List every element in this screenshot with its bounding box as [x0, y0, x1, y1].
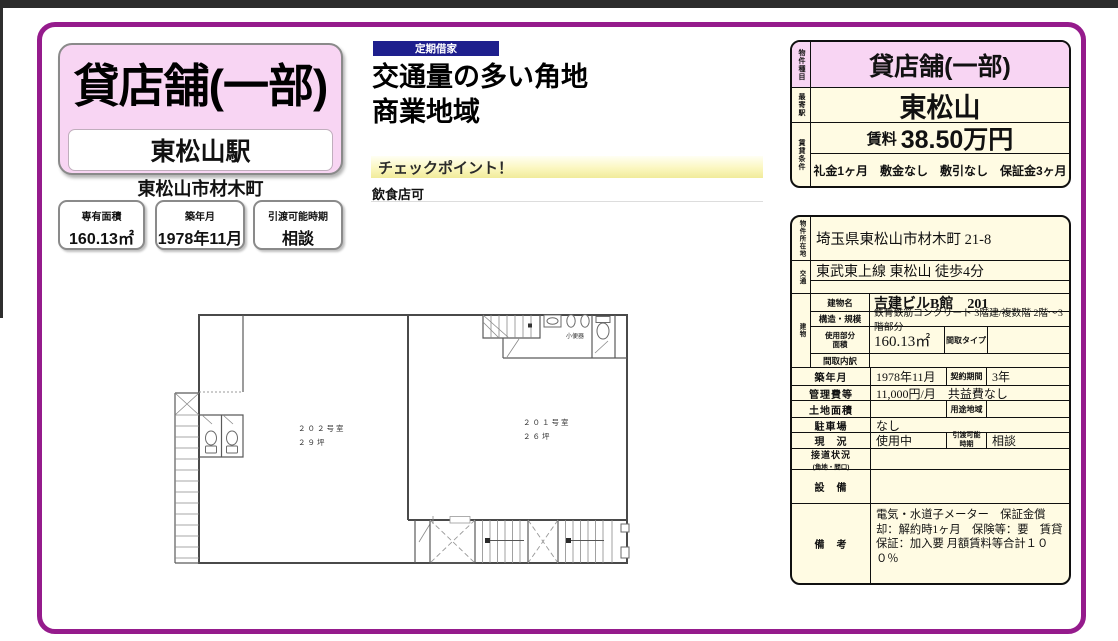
parking-value: なし — [871, 418, 1069, 432]
property-flyer-page: 貸店舗(一部) 東松山駅 東松山市材木町 専有面積 160.13㎡ 築年月 19… — [0, 0, 1118, 641]
access-line1: 東武東上線 東松山 徒歩4分 — [811, 261, 1069, 281]
fact-label: 築年月 — [157, 208, 243, 223]
remarks-value: 電気・水道子メーター 保証金償却：解約時1ヶ月 保険等：要 賃貸保証：加入要 月… — [871, 504, 1069, 583]
contract-value: 3年 — [987, 368, 1069, 385]
viewer-top-bar — [0, 0, 1118, 8]
structure-value: 鉄骨鉄筋コンクリート 3階建/複数階 2階〜3階部分 — [870, 312, 1069, 326]
row-label: 管理費等 — [792, 386, 871, 400]
row-label: 接道状況 (角地・間口) — [792, 449, 871, 469]
sub-label: 間取内訳 — [811, 354, 870, 367]
row-label: 備 考 — [792, 504, 871, 583]
equipment-value — [871, 470, 1069, 503]
zoning-value — [987, 401, 1069, 417]
station-value: 東松山 — [811, 88, 1069, 122]
rent-line: 賃料 38.50万円 — [811, 123, 1069, 154]
layout-type-value — [988, 327, 1069, 353]
washroom-fixtures: 小便器 — [544, 315, 589, 340]
handover-label: 引渡可能時期 — [947, 433, 987, 448]
fact-value: 1978年11月 — [157, 225, 243, 249]
access-line2 — [811, 281, 1069, 293]
used-area-row: 使用部分面積 160.13㎡ 間取タイプ — [811, 326, 1069, 353]
row-label: 駐車場 — [792, 418, 871, 432]
used-area-value: 160.13㎡ — [870, 327, 945, 353]
row-label: 賃貸条件 — [792, 123, 811, 186]
upper-toilet-room — [592, 315, 615, 358]
stair-direction-arrow — [566, 538, 571, 543]
row-label: 最寄駅 — [792, 88, 811, 122]
row-management-fee: 管理費等 11,000円/月 共益費なし — [792, 385, 1069, 400]
management-fee-value: 11,000円/月 共益費なし — [871, 386, 1069, 400]
row-status: 現 況 使用中 引渡可能時期 相談 — [792, 432, 1069, 448]
closet-top-left — [199, 315, 243, 392]
sub-label: 使用部分面積 — [811, 327, 870, 353]
row-built: 築年月 1978年11月 契約期間 3年 — [792, 367, 1069, 385]
property-type-value: 貸店舗(一部) — [811, 42, 1069, 87]
property-type-box: 貸店舗(一部) 東松山駅 — [58, 43, 343, 175]
row-label: 建物 — [792, 294, 811, 367]
divider-rule — [371, 201, 763, 202]
summary-row-type: 物件種目 貸店舗(一部) — [792, 42, 1069, 87]
fact-value: 相談 — [255, 225, 341, 249]
structure-row: 構造・規模 鉄骨鉄筋コンクリート 3階建/複数階 2階〜3階部分 — [811, 311, 1069, 326]
zoning-label: 用途地域 — [947, 401, 987, 417]
row-remarks: 備 考 電気・水道子メーター 保証金償却：解約時1ヶ月 保険等：要 賃貸保証：加… — [792, 503, 1069, 583]
room-labels: ２０２号室 ２９坪 ２０１号室 ２６坪 — [298, 417, 571, 447]
layout-detail-value — [870, 354, 1069, 367]
summary-table: 物件種目 貸店舗(一部) 最寄駅 東松山 賃貸条件 賃料 38.50万円 礼金1… — [790, 40, 1071, 188]
status-value: 使用中 — [871, 433, 947, 448]
contract-label: 契約期間 — [947, 368, 987, 385]
headline-line2: 商業地域 — [372, 90, 480, 129]
toilet-stalls — [200, 415, 243, 457]
row-equipment: 設 備 — [792, 469, 1069, 503]
rent-value: 38.50万円 — [901, 120, 1014, 156]
room-201-area: ２６坪 — [523, 432, 552, 441]
flyer-sheet: 貸店舗(一部) 東松山駅 東松山市材木町 専有面積 160.13㎡ 築年月 19… — [37, 22, 1086, 634]
row-address: 物件所在地 埼玉県東松山市材木町 21-8 — [792, 217, 1069, 260]
sub-label: 構造・規模 — [811, 312, 870, 326]
outer-walls — [199, 315, 627, 563]
wall-opening — [450, 517, 470, 524]
fact-label: 専有面積 — [60, 208, 143, 223]
row-label: 現 況 — [792, 433, 871, 448]
station-box: 東松山駅 — [68, 129, 333, 171]
fixed-term-lease-badge: 定期借家 — [373, 41, 499, 56]
fact-built-date: 築年月 1978年11月 — [155, 200, 245, 250]
urinal-label: 小便器 — [566, 332, 584, 340]
layout-detail-row: 間取内訳 — [811, 353, 1069, 367]
district-label: 東松山市材木町 — [58, 175, 343, 201]
layout-type-label: 間取タイプ — [945, 327, 988, 353]
lease-terms: 礼金1ヶ月 敷金なし 敷引なし 保証金3ヶ月 — [811, 154, 1069, 186]
road-value — [871, 449, 1069, 469]
floor-plan: 小便器 — [155, 295, 645, 595]
row-access: 交通 東武東上線 東松山 徒歩4分 — [792, 260, 1069, 293]
row-building: 建物 建物名 吉建ビルB館 201 構造・規模 鉄骨鉄筋コンクリート 3階建/複… — [792, 293, 1069, 367]
built-value: 1978年11月 — [871, 368, 947, 385]
fact-handover: 引渡可能時期 相談 — [253, 200, 343, 250]
room-202-name: ２０２号室 — [298, 423, 346, 433]
row-label: 物件所在地 — [792, 217, 811, 260]
fact-exclusive-area: 専有面積 160.13㎡ — [58, 200, 145, 250]
row-label: 交通 — [792, 261, 811, 293]
fact-label: 引渡可能時期 — [255, 208, 341, 223]
property-type-title: 貸店舗(一部) — [60, 50, 341, 116]
land-area-value — [871, 401, 947, 417]
fact-value: 160.13㎡ — [60, 225, 143, 249]
row-land-area: 土地面積 用途地域 — [792, 400, 1069, 417]
room-201-name: ２０１号室 — [523, 417, 571, 427]
summary-row-rent: 賃貸条件 賃料 38.50万円 礼金1ヶ月 敷金なし 敷引なし 保証金3ヶ月 — [792, 122, 1069, 186]
row-label: 築年月 — [792, 368, 871, 385]
station-name: 東松山駅 — [150, 132, 250, 168]
urinal-icon — [567, 315, 575, 327]
room-202-area: ２９坪 — [298, 438, 327, 447]
urinal-icon — [581, 315, 589, 327]
viewer-left-edge — [0, 8, 3, 318]
row-label: 設 備 — [792, 470, 871, 503]
row-parking: 駐車場 なし — [792, 417, 1069, 432]
headline-line1: 交通量の多い角地 — [372, 55, 588, 94]
detail-table: 物件所在地 埼玉県東松山市材木町 21-8 交通 東武東上線 東松山 徒歩4分 … — [790, 215, 1071, 585]
stair-direction-arrow — [485, 538, 490, 543]
sub-label: 建物名 — [811, 294, 870, 311]
handover-value: 相談 — [987, 433, 1069, 448]
checkpoint-strip: チェックポイント！ — [371, 156, 763, 178]
address-value: 埼玉県東松山市材木町 21-8 — [811, 217, 1069, 260]
row-label: 土地面積 — [792, 401, 871, 417]
bottom-corridor — [415, 516, 629, 563]
rent-label: 賃料 — [867, 128, 897, 149]
row-road: 接道状況 (角地・間口) — [792, 448, 1069, 469]
summary-row-station: 最寄駅 東松山 — [792, 87, 1069, 122]
left-staircase — [175, 393, 199, 563]
row-label: 物件種目 — [792, 42, 811, 87]
